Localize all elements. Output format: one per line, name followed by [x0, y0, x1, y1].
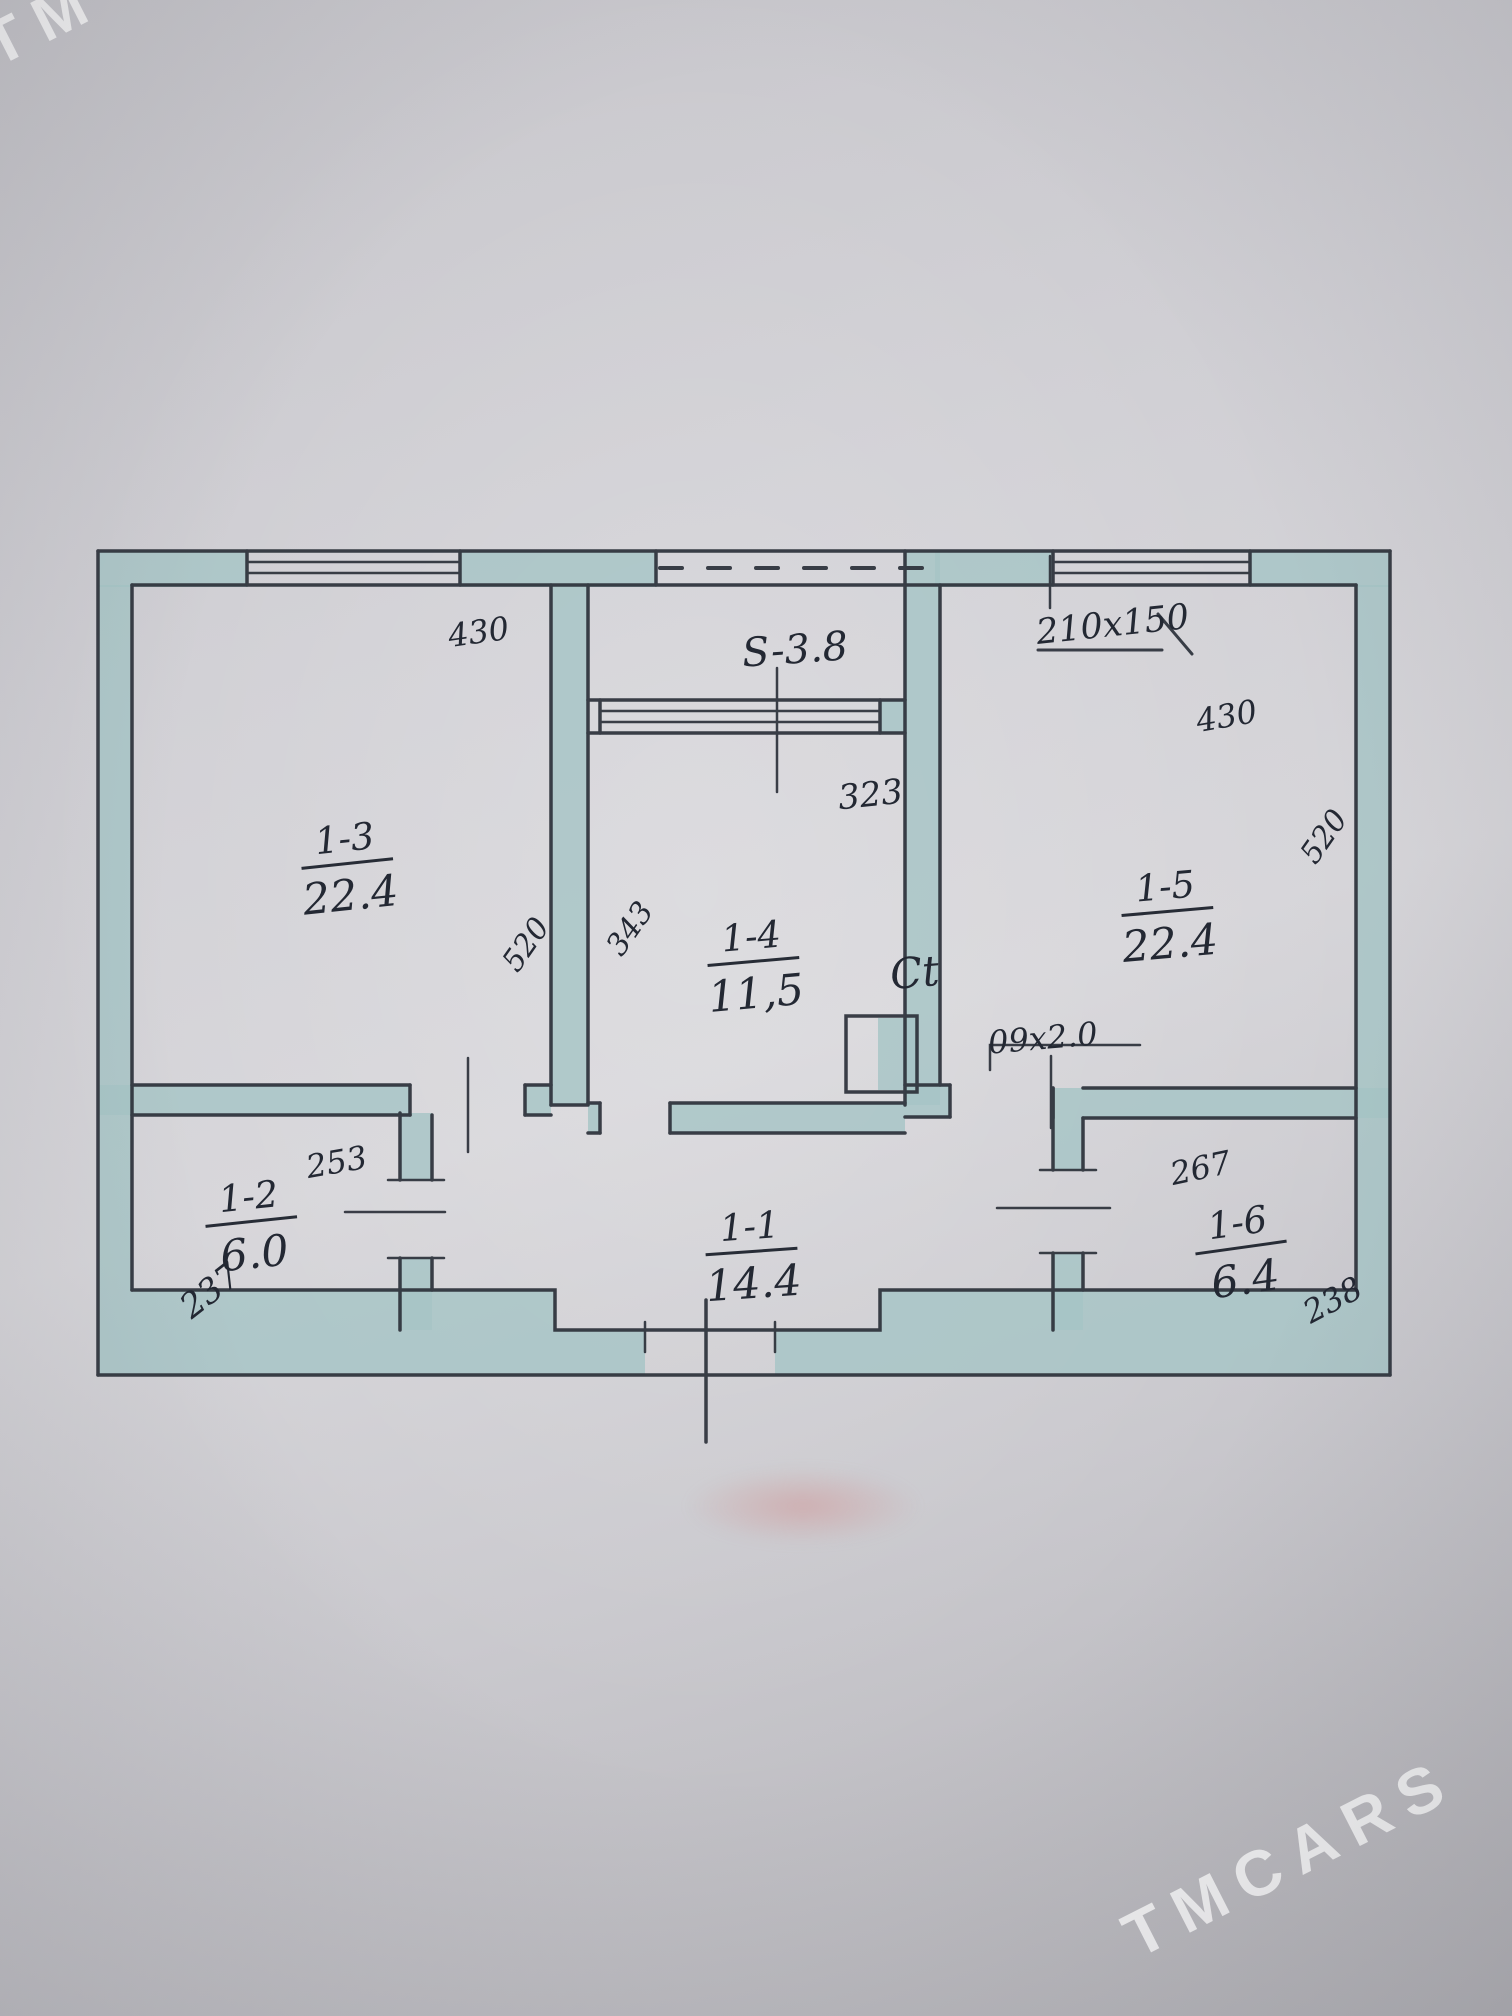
- room-1-5-label: 1-5 22.4: [1116, 864, 1220, 973]
- floorplan-photo: 1-3 22.4 1-4 11,5 1-5 22.4 1-2 6.0 1-1 1…: [0, 0, 1512, 2016]
- dim-430-left: 430: [446, 612, 511, 652]
- pink-smudge: [688, 1468, 918, 1544]
- room-id: 1-5: [1118, 864, 1213, 917]
- room-1-4-label: 1-4 11,5: [702, 914, 806, 1023]
- room-id: 1-2: [201, 1173, 297, 1227]
- room-id: 1-3: [297, 815, 393, 869]
- dim-323: 323: [836, 775, 904, 816]
- room-id: 1-4: [704, 914, 799, 967]
- room-area: 14.4: [704, 1256, 803, 1313]
- room-area: 22.4: [1120, 915, 1220, 973]
- balcony-area-label: S-3.8: [741, 626, 850, 673]
- room-area: 22.4: [300, 866, 400, 926]
- vent-symbol: Ct: [888, 950, 940, 996]
- dim-253: 253: [304, 1141, 370, 1183]
- dim-09x2-0: 09x2.0: [987, 1017, 1099, 1058]
- room-1-6-label: 1-6 6.4: [1189, 1198, 1294, 1311]
- room-1-1-label: 1-1 14.4: [701, 1205, 804, 1312]
- room-1-3-label: 1-3 22.4: [295, 815, 401, 925]
- room-area: 11,5: [706, 965, 806, 1023]
- room-id: 1-1: [703, 1205, 797, 1256]
- dim-430-right: 430: [1194, 695, 1260, 737]
